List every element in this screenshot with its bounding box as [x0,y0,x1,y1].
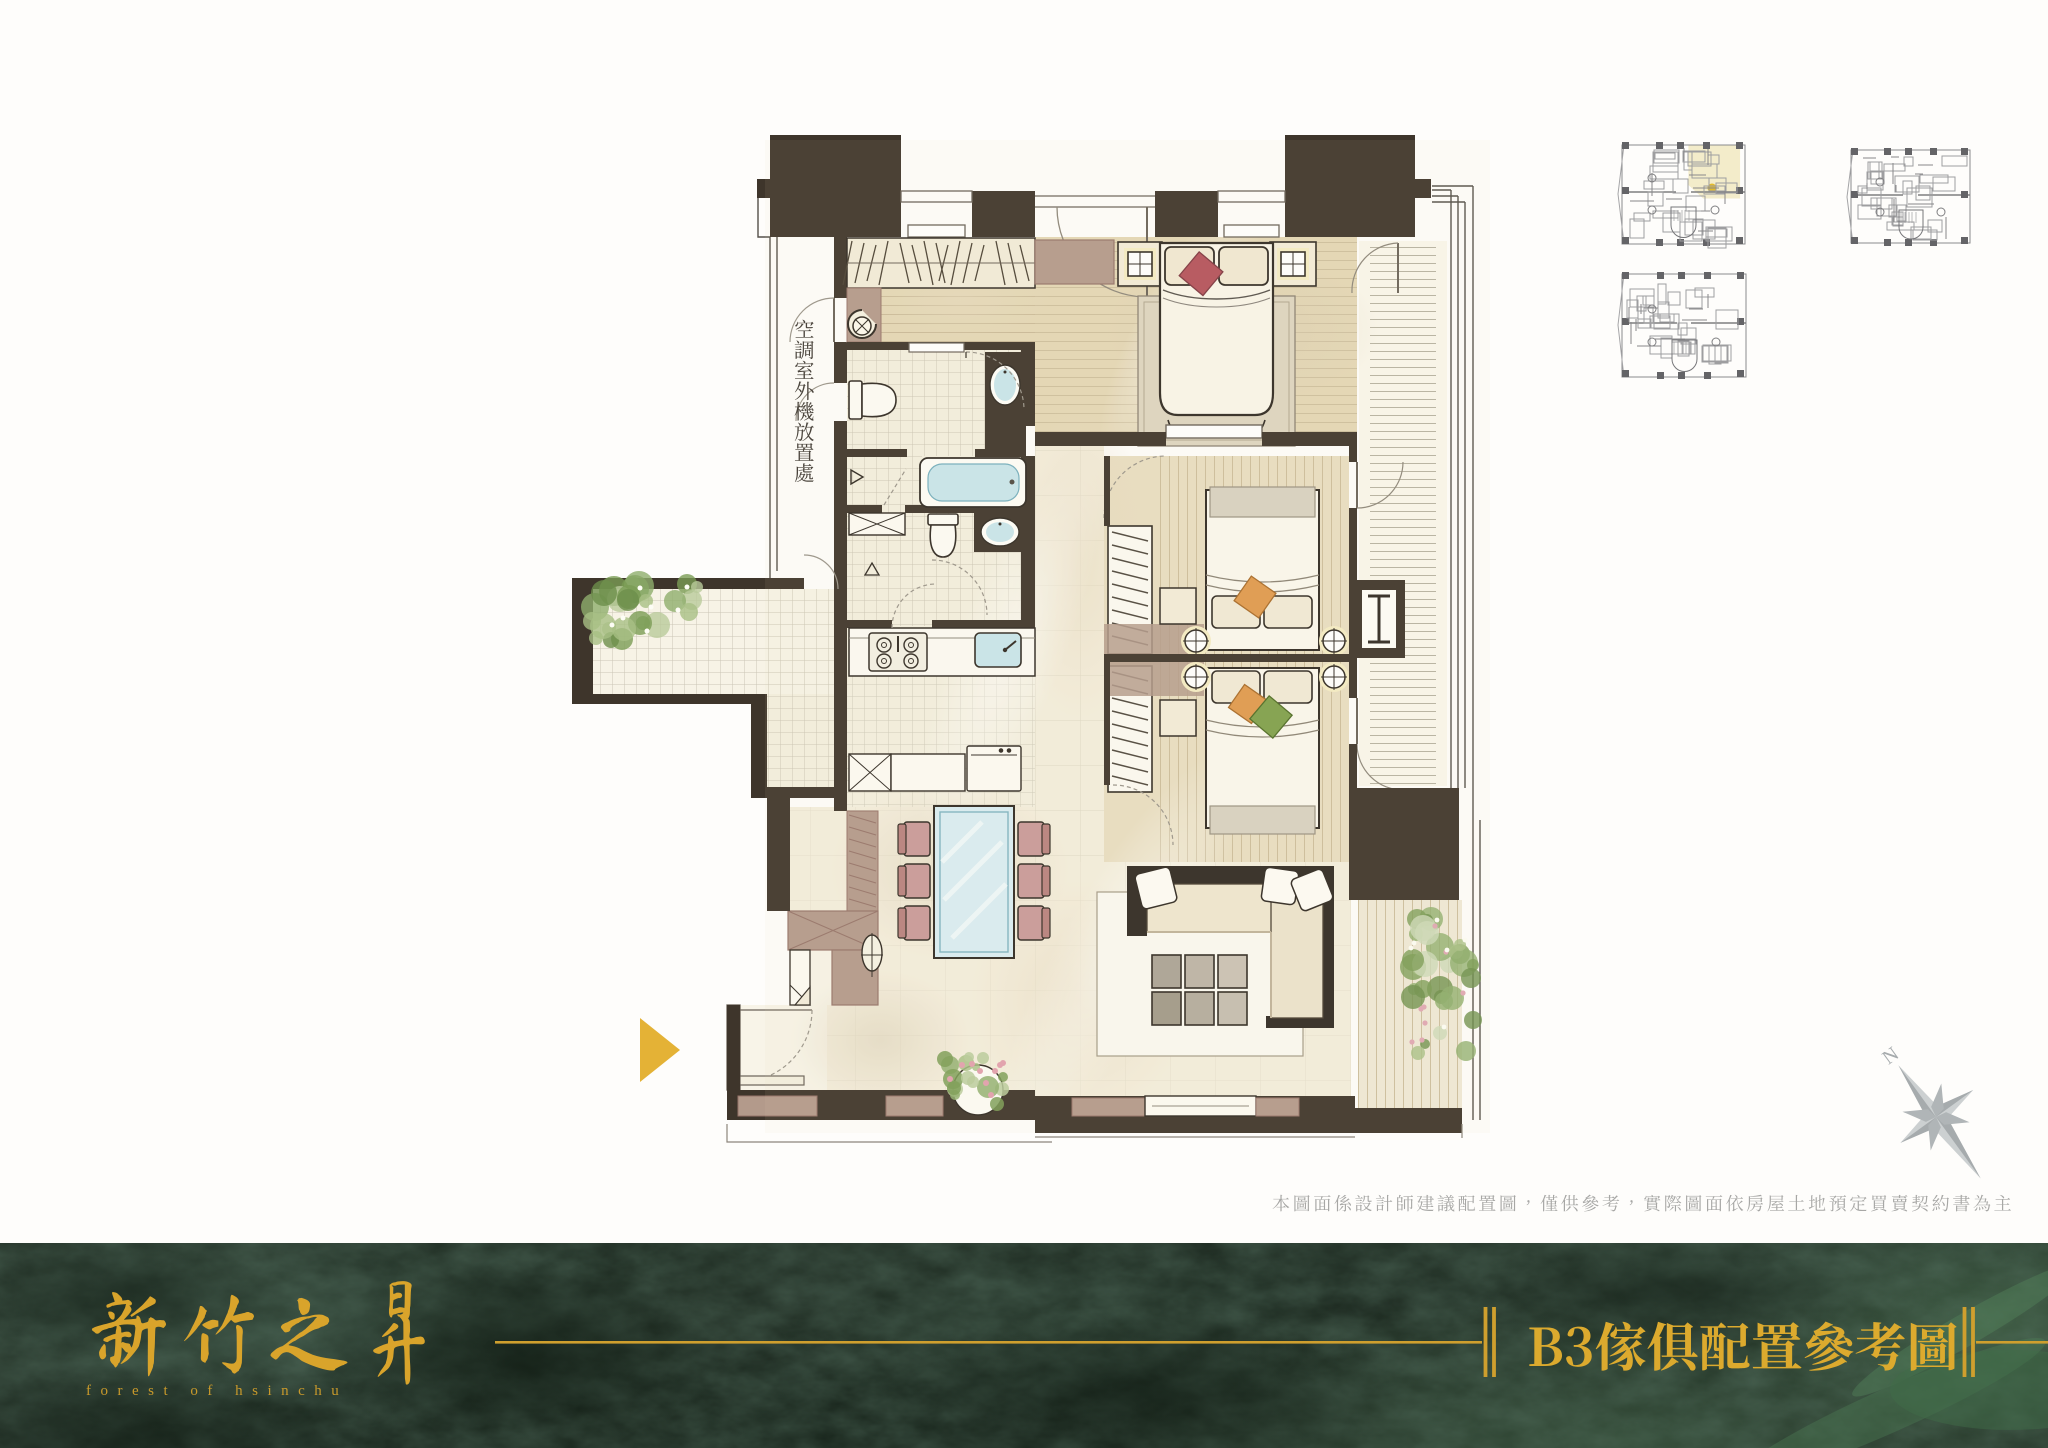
svg-text:forest of hsinchu: forest of hsinchu [86,1383,348,1399]
